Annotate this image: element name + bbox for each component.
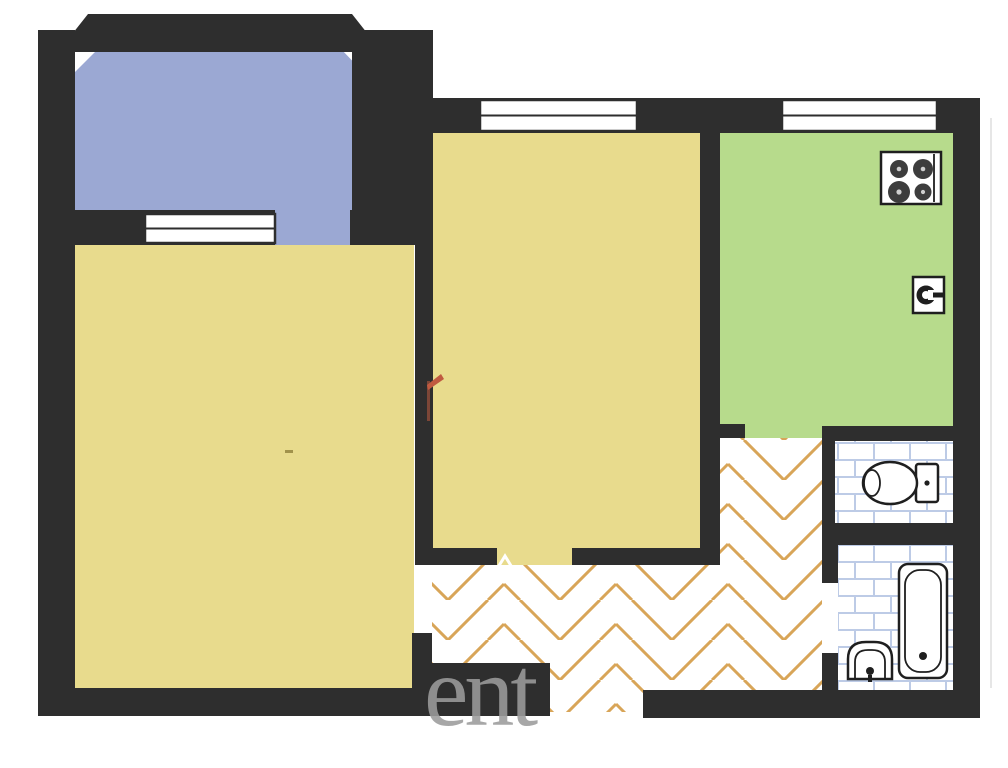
bathroom-left-wall-lower — [822, 653, 838, 693]
bedroom-kitchen-divider-wall — [700, 98, 720, 565]
bedroom-window — [480, 100, 637, 131]
openings — [275, 208, 350, 245]
wc-left-wall — [822, 438, 835, 526]
watermark-text: ent — [424, 642, 534, 742]
bathtub-icon — [899, 564, 947, 678]
bedroom-bottom-wall-left — [415, 548, 497, 565]
balcony-window — [145, 214, 275, 243]
wc-bathroom-divider-wall — [822, 523, 980, 545]
bathroom-sink-icon — [848, 642, 892, 682]
bedroom-bottom-wall-right — [572, 548, 720, 565]
kitchen-door-stub-wall — [720, 424, 745, 438]
room-bedroom — [433, 133, 700, 565]
room-living — [75, 244, 414, 690]
balcony-top-wall — [58, 14, 382, 52]
living-bedroom-divider-wall — [415, 133, 433, 565]
room-balcony — [73, 48, 365, 212]
floor-plan: ent — [0, 0, 1008, 768]
faint-edge-line — [990, 118, 992, 688]
bathroom-left-wall-upper — [822, 545, 838, 583]
bottom-outer-wall-left — [38, 688, 428, 716]
balcony-door-opening — [275, 208, 350, 245]
kitchen-sink-icon — [913, 277, 944, 313]
bottom-outer-wall-right — [643, 690, 980, 718]
stove-icon — [881, 152, 941, 204]
toilet-icon — [863, 462, 938, 504]
right-outer-wall — [953, 98, 980, 718]
kitchen-window — [782, 100, 937, 131]
left-outer-wall — [38, 30, 75, 716]
small-dash-mark — [285, 450, 293, 453]
